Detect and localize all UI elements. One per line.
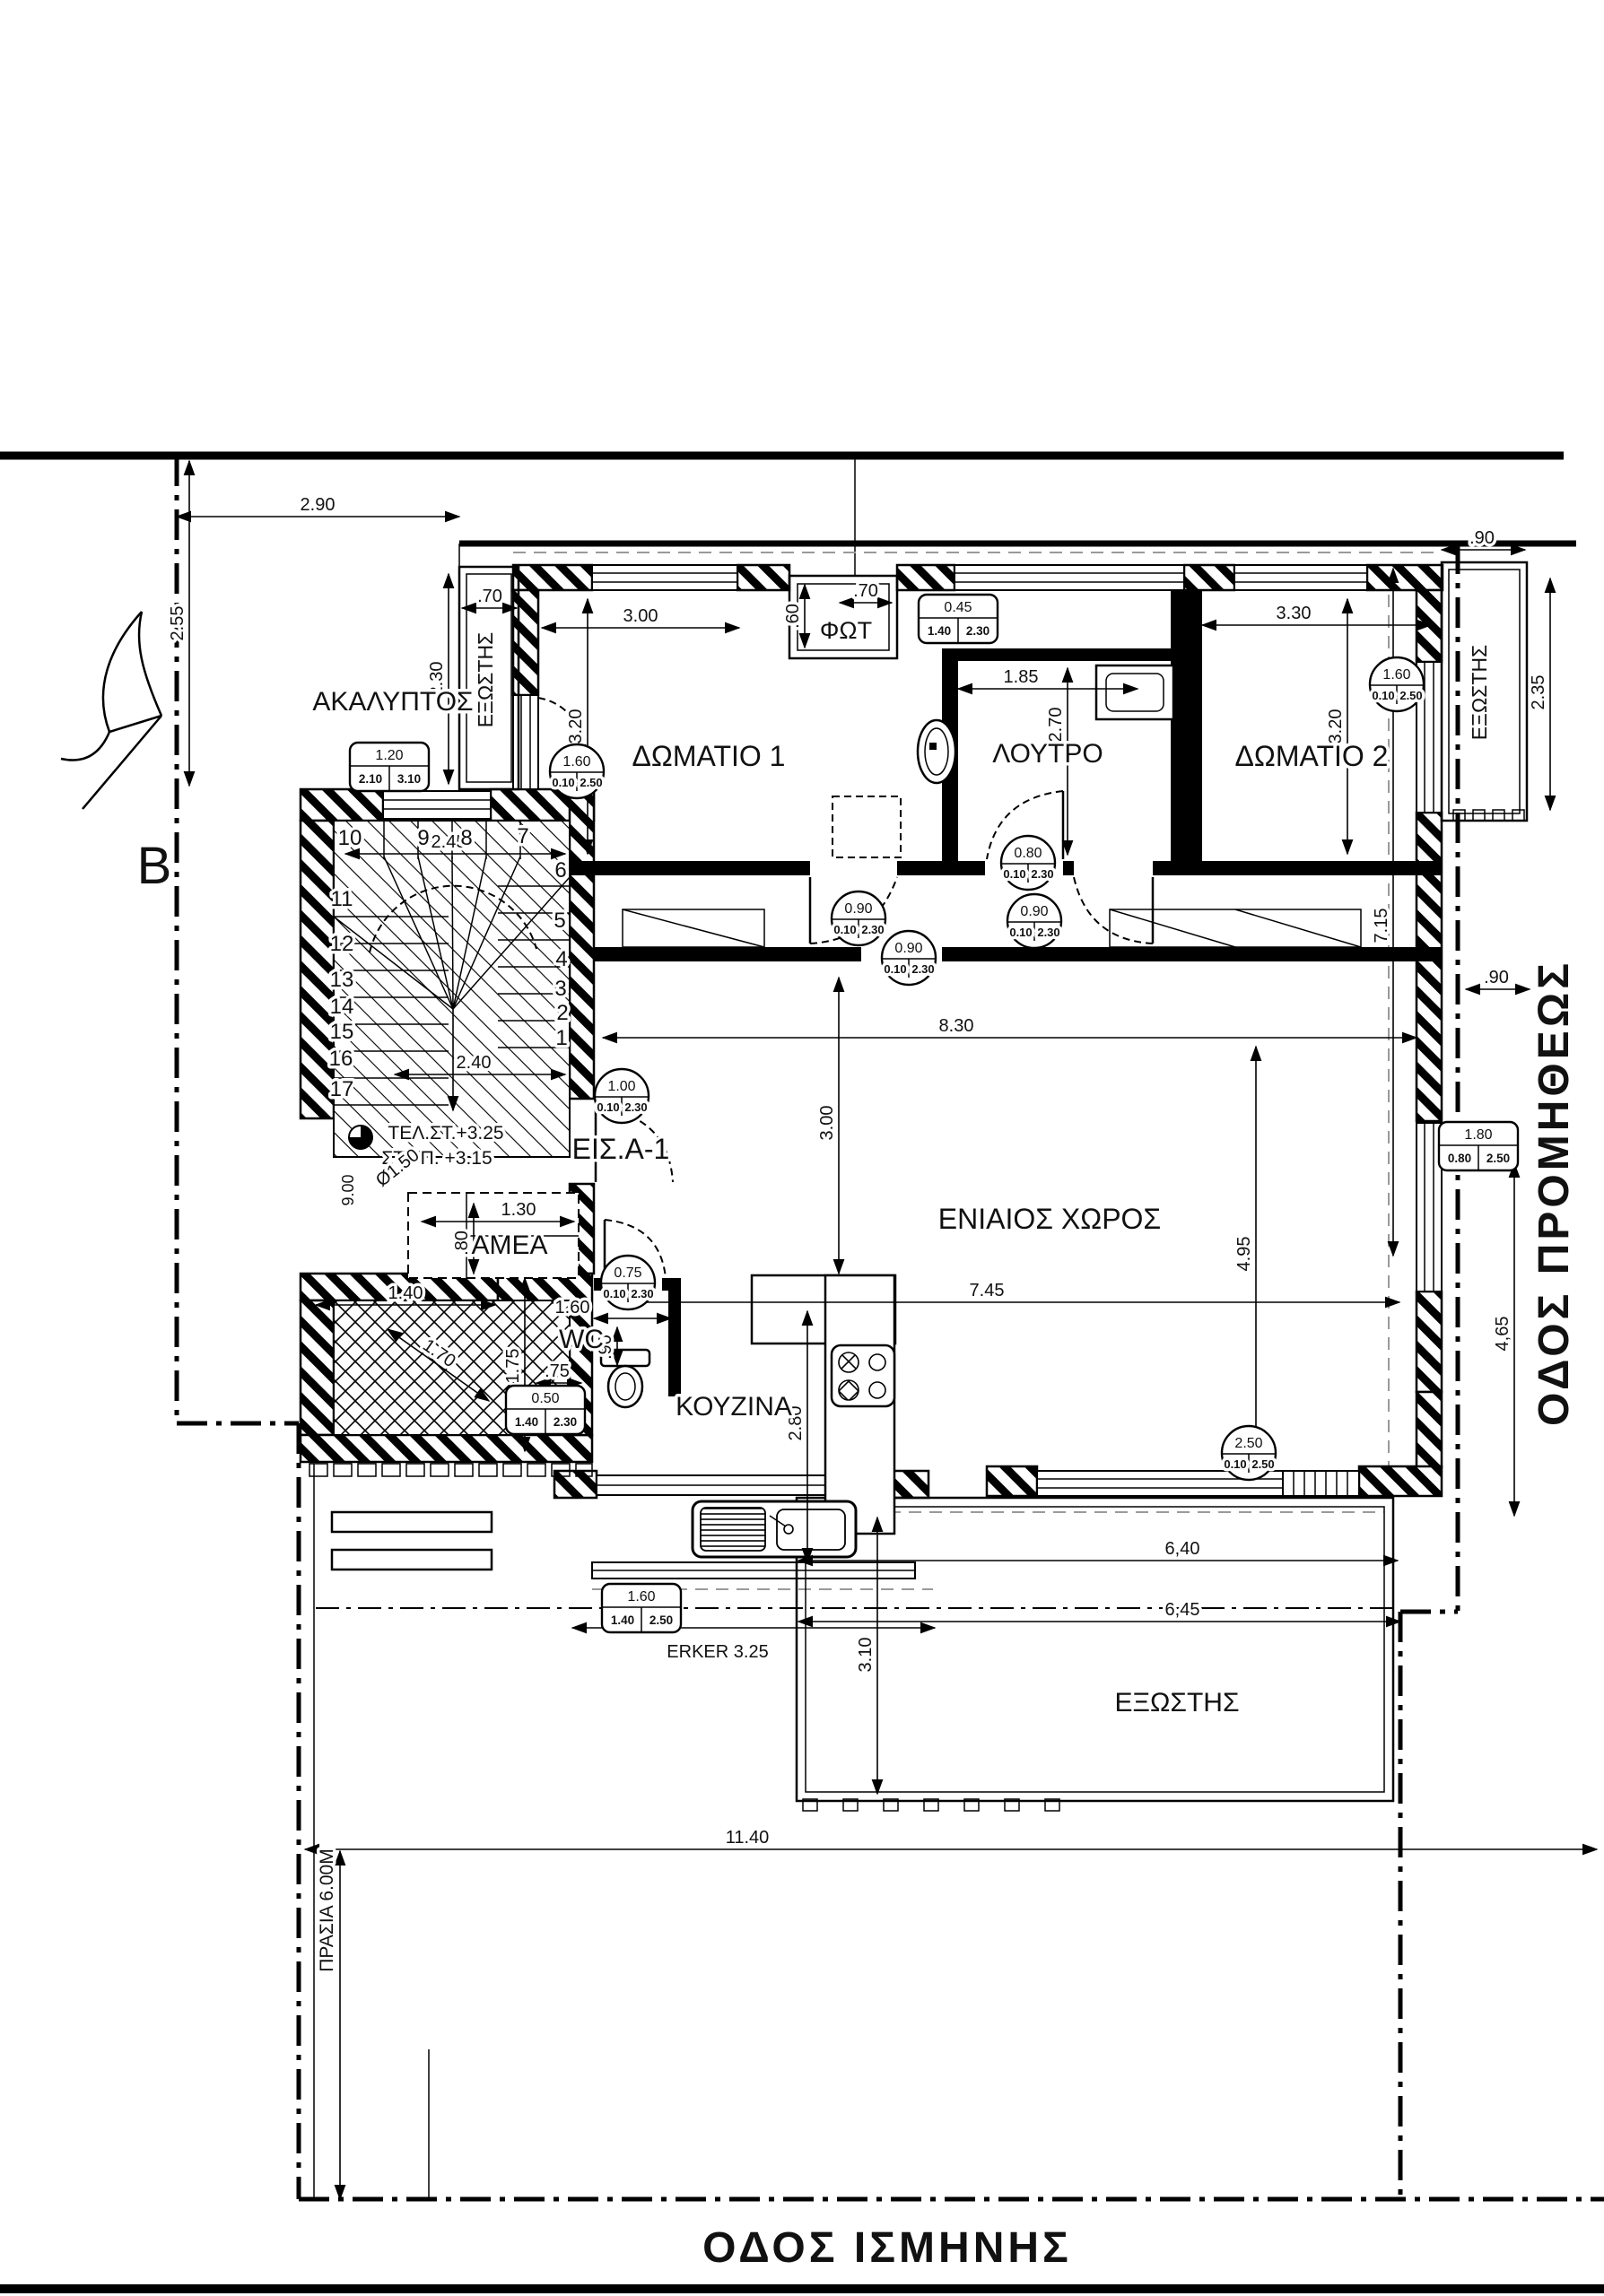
room-label-wc: WC: [559, 1325, 604, 1354]
room-label-domatio-2: ΔΩΜΑΤΙΟ 2: [1235, 740, 1389, 772]
dimension-label: 3.20: [1326, 709, 1346, 744]
dimension-label: .80: [452, 1231, 472, 1256]
stair-note: ΤΕΛ.ΣΤ.+3.25: [388, 1123, 503, 1144]
north-arrow-icon: [61, 612, 161, 809]
closet-hall-east: [1110, 909, 1361, 947]
window-width: 0.50: [531, 1391, 559, 1406]
dimension-label: 6,40: [1165, 1539, 1200, 1559]
door-width: 1.60: [1382, 667, 1410, 683]
closet-hall-west: [623, 909, 764, 947]
loutro-toilet: [1096, 665, 1173, 719]
stair-step-number: 7: [517, 824, 528, 848]
dimension-label: .70: [853, 581, 878, 601]
door-width: 1.60: [562, 754, 590, 770]
stair-step-number: 6: [554, 858, 566, 883]
stair-step-number: 15: [330, 1020, 354, 1044]
door-height: 2.30: [861, 923, 884, 936]
window-height: 3.10: [397, 772, 421, 786]
stair-step-number: 2: [556, 1001, 568, 1025]
balcony-door-domatio1: [513, 695, 538, 789]
room-label-exostis-nw: ΕΞΩΣΤΗΣ: [474, 632, 497, 728]
door-width: 1.00: [607, 1079, 635, 1094]
dimension-label: .75: [545, 1361, 570, 1381]
window-width: 0.45: [944, 600, 972, 615]
door-sill: 0.10: [833, 923, 856, 936]
room-label-kouzina: ΚΟΥΖΙΝΑ: [676, 1392, 792, 1422]
room-label-domatio-1: ΔΩΜΑΤΙΟ 1: [632, 740, 786, 772]
dimension-label: .60: [783, 604, 803, 629]
door-height: 2.30: [911, 962, 934, 976]
stair-step-number: 14: [330, 995, 354, 1019]
window-domatio2-north: [1234, 565, 1367, 590]
dimension-label: .90: [1469, 528, 1495, 548]
door-width: 0.80: [1014, 846, 1042, 861]
stair-step-number: 3: [554, 977, 566, 1001]
fixtures: [601, 665, 1173, 1557]
dimension-label: .90: [1484, 968, 1509, 987]
door-height: 2.30: [624, 1100, 647, 1114]
stair-step-number: 16: [329, 1047, 353, 1071]
door-swings: [538, 698, 1153, 1278]
door-size-badges: 1.600.102.501.600.102.500.800.102.300.90…: [550, 657, 1424, 1480]
window-height: 2.30: [966, 624, 989, 638]
stair-step-number: 12: [330, 932, 354, 956]
north-label: B: [137, 837, 172, 895]
window-stair-north: [383, 791, 491, 819]
window-sill: 1.40: [611, 1613, 634, 1627]
dimension-label: 1.60: [555, 1298, 590, 1318]
dimension-label: 8.30: [939, 1016, 974, 1036]
stair-step-number: 11: [331, 887, 353, 911]
door-height: 2.30: [1037, 926, 1059, 939]
planter: [332, 1512, 492, 1532]
door-height: 2.50: [580, 776, 602, 789]
window-sill: 1.40: [928, 624, 951, 638]
door-sill: 0.10: [1372, 689, 1394, 702]
window-sill: 1.40: [515, 1415, 538, 1429]
wardrobe-domatio1: [833, 796, 901, 857]
kitchen-cooktop: [832, 1345, 894, 1406]
room-label-exostis-south: ΕΞΩΣΤΗΣ: [1114, 1688, 1239, 1718]
planter: [332, 1550, 492, 1570]
dimension-label: 2.35: [1529, 675, 1548, 710]
dimension-label: 1.30: [501, 1200, 536, 1220]
window-domatio1-north: [592, 565, 737, 590]
dimension-label: 1.40: [388, 1283, 423, 1303]
loutro-sink: [918, 720, 955, 783]
window-loutro-north: [955, 565, 1184, 590]
stair-step-number: 4: [555, 947, 567, 971]
window-bay: [592, 1562, 915, 1578]
door-sill: 0.10: [603, 1287, 625, 1300]
dimension-label: 3.20: [566, 709, 586, 744]
dimension-label: 1.85: [1004, 667, 1039, 687]
dimension-label: 11.40: [726, 1828, 770, 1848]
room-label-exostis-ne: ΕΞΩΣΤΗΣ: [1468, 645, 1491, 741]
stair-step-number: 8: [460, 826, 472, 850]
stair-step-number: 1: [555, 1026, 567, 1050]
dimension-label: 3.00: [817, 1106, 837, 1141]
dimension-label: 7.15: [1372, 909, 1391, 944]
dimension-label: 4,65: [1493, 1317, 1512, 1352]
door-sill: 0.10: [1009, 926, 1032, 939]
door-height: 2.30: [631, 1287, 653, 1300]
door-width: 0.75: [614, 1265, 641, 1281]
door-height: 2.50: [1399, 689, 1422, 702]
kitchen-sink: [693, 1501, 856, 1557]
door-height: 2.50: [1251, 1457, 1274, 1471]
door-sill: 0.10: [1224, 1457, 1246, 1471]
window-height: 2.30: [554, 1415, 577, 1429]
dimension-label: 1.75: [503, 1349, 523, 1384]
site-boundary-lines: [0, 456, 1604, 2289]
dimension-label: ΠΡΑΣΙΑ 6.00Μ: [317, 1848, 337, 1971]
window-sill: 0.80: [1448, 1152, 1471, 1165]
door-sill: 0.10: [1003, 867, 1025, 881]
dimension-label: 3.10: [856, 1638, 876, 1673]
door-sill: 0.10: [597, 1100, 619, 1114]
dimension-label: 2.70: [1046, 708, 1066, 743]
window-width: 1.20: [375, 748, 403, 763]
room-label-akalyptos: ΑΚΑΛΥΠΤΟΣ: [312, 687, 473, 717]
door-width: 0.90: [894, 941, 922, 956]
dimension-label: 4.95: [1234, 1237, 1254, 1272]
room-label-eis-a1: ΕΙΣ.Α-1: [572, 1133, 670, 1165]
stair-step-number: 10: [338, 826, 362, 850]
window-height: 2.50: [649, 1613, 673, 1627]
balcony-south: [797, 1498, 1393, 1811]
stair-note: 9.00: [339, 1174, 357, 1205]
room-label-loutro: ΛΟΥΤΡΟ: [992, 739, 1103, 769]
dimension-label: .70: [477, 587, 502, 606]
window-height: 2.50: [1486, 1152, 1510, 1165]
window-width: 1.80: [1464, 1127, 1492, 1143]
upper-floor-guides: [513, 552, 1442, 1589]
door-width: 0.90: [844, 901, 872, 917]
dimension-label: 2.40: [457, 1053, 492, 1073]
room-label-amea: ΑΜΕΑ: [471, 1231, 547, 1260]
window-width: 1.60: [627, 1589, 655, 1605]
dimension-label: ERKER 3.25: [667, 1642, 768, 1662]
dimension-label: 2.90: [301, 495, 336, 515]
room-label-enaios-xoros: ΕΝΙΑΙΟΣ ΧΩΡΟΣ: [938, 1203, 1161, 1235]
window-sill: 2.10: [359, 772, 382, 786]
dimension-label: 7.45: [970, 1281, 1005, 1300]
dimension-label: 2.55: [168, 606, 187, 641]
room-label-fot: ΦΩΤ: [820, 617, 872, 644]
stairwell: [334, 821, 570, 1157]
door-sill: 0.10: [552, 776, 574, 789]
floor-plan-canvas: B ΟΔΟΣ ΙΣΜΗΝΗΣ ΟΔΟΣ ΠΡΟΜΗΘΕΩΣ 2.902.55.7…: [0, 0, 1604, 2296]
door-sill: 0.10: [884, 962, 906, 976]
street-name-bottom: ΟΔΟΣ ΙΣΜΗΝΗΣ: [702, 2224, 1072, 2272]
door-height: 2.30: [1031, 867, 1053, 881]
stair-step-number: 13: [330, 968, 354, 992]
street-name-right: ΟΔΟΣ ΠΡΟΜΗΘΕΩΣ: [1530, 960, 1578, 1426]
dimension-label: 3.00: [623, 606, 658, 626]
door-width: 0.90: [1020, 904, 1048, 919]
dimension-label: 3.30: [1277, 604, 1312, 623]
door-width: 2.50: [1234, 1436, 1262, 1451]
threshold-balcony-door: [1283, 1471, 1359, 1496]
stair-step-number: 17: [330, 1077, 354, 1101]
stair-step-number: 9: [417, 826, 429, 850]
stair-step-number: 5: [554, 909, 565, 933]
dimension-label: 6,45: [1165, 1600, 1200, 1620]
